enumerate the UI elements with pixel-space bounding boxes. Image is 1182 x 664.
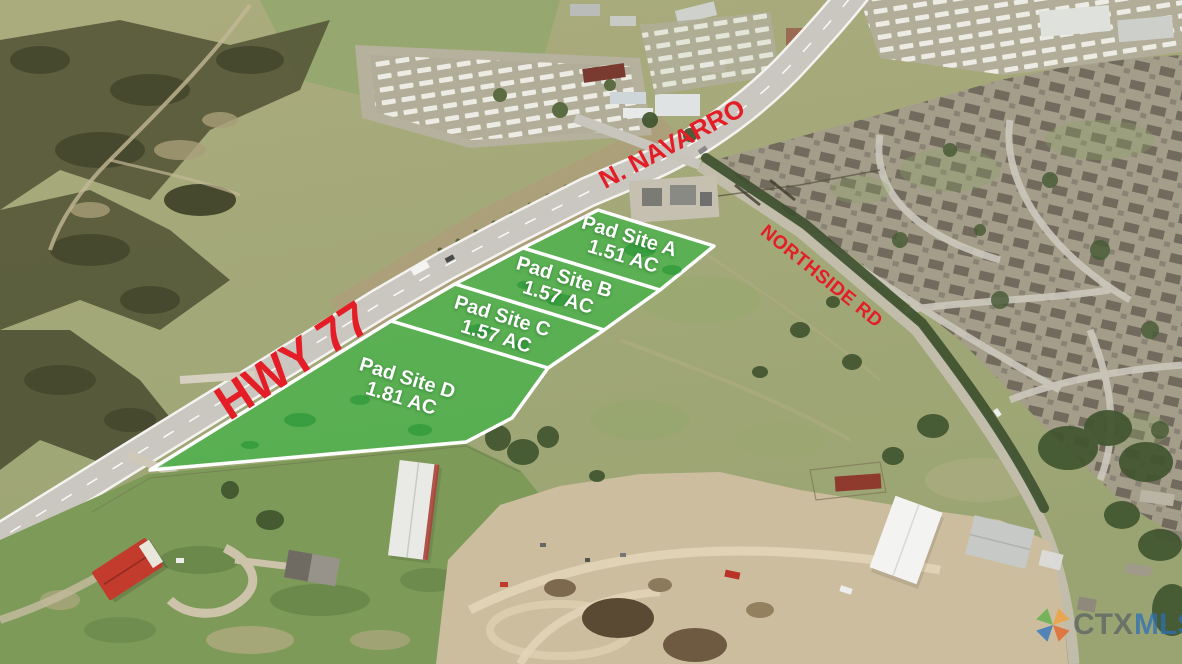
red-shed bbox=[835, 473, 882, 491]
ctxmls-logo-icon bbox=[1034, 606, 1072, 644]
watermark-prefix: CTX bbox=[1073, 608, 1133, 642]
red-car bbox=[500, 582, 508, 587]
aerial-listing-photo: HWY 77 N. NAVARRO NORTHSIDE RD Pad Site … bbox=[0, 0, 1182, 664]
ctxmls-watermark: CTX MLS bbox=[1034, 606, 1182, 644]
watermark-suffix: MLS bbox=[1134, 608, 1182, 642]
aerial-scene bbox=[0, 0, 1182, 664]
